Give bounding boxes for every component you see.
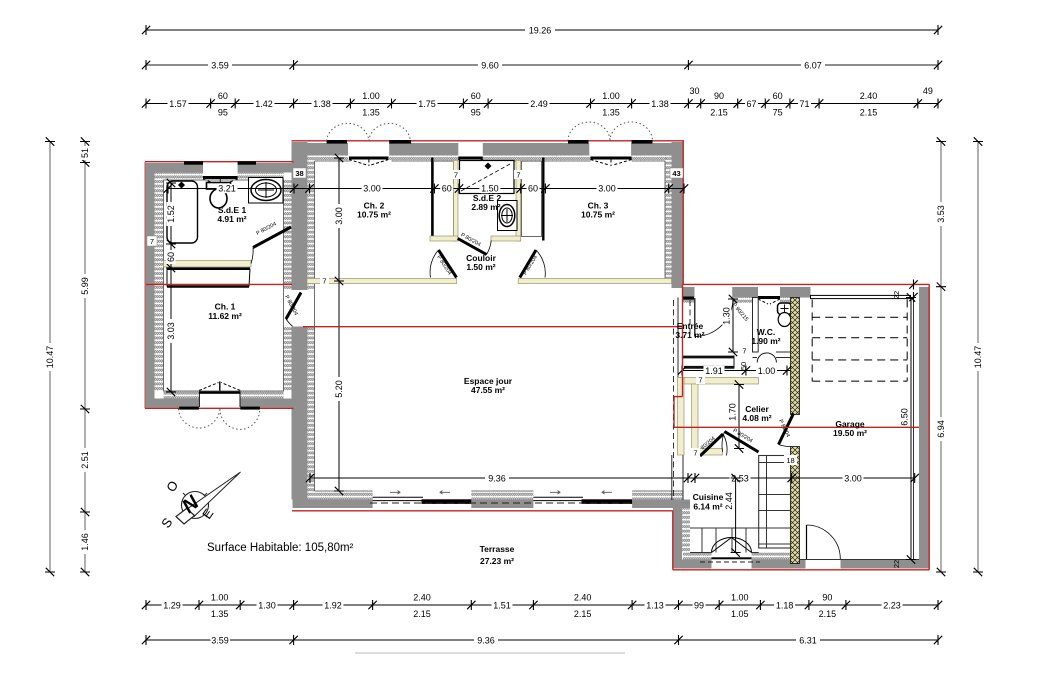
svg-text:60: 60 [773, 91, 783, 101]
svg-text:6.14 m²: 6.14 m² [693, 502, 722, 512]
svg-text:1.35: 1.35 [602, 108, 620, 118]
svg-text:11.62 m²: 11.62 m² [208, 311, 242, 321]
svg-text:49: 49 [923, 86, 933, 96]
svg-text:1.57: 1.57 [169, 99, 187, 109]
svg-text:2.40: 2.40 [574, 593, 592, 603]
svg-text:1.00: 1.00 [731, 593, 749, 603]
svg-text:19.50 m²: 19.50 m² [833, 428, 867, 438]
svg-text:2.89 m²: 2.89 m² [471, 202, 500, 212]
svg-text:7: 7 [516, 171, 520, 180]
svg-text:1.29: 1.29 [163, 601, 181, 611]
svg-text:3.53: 3.53 [936, 205, 946, 223]
svg-text:1.30: 1.30 [722, 307, 732, 325]
svg-text:60: 60 [471, 91, 481, 101]
svg-text:1.00: 1.00 [362, 91, 380, 101]
svg-text:1.00: 1.00 [602, 91, 620, 101]
svg-text:3.00: 3.00 [598, 184, 616, 194]
svg-text:10.75 m²: 10.75 m² [357, 210, 391, 220]
svg-text:3.00: 3.00 [334, 207, 344, 225]
svg-text:10.47: 10.47 [973, 346, 983, 369]
svg-text:22: 22 [892, 560, 901, 568]
svg-text:9.60: 9.60 [481, 61, 499, 71]
svg-text:1.05: 1.05 [731, 609, 749, 619]
svg-text:7: 7 [742, 347, 746, 356]
svg-text:1.35: 1.35 [362, 108, 380, 118]
svg-text:4.91 m²: 4.91 m² [217, 214, 246, 224]
svg-text:1.75: 1.75 [418, 99, 436, 109]
svg-text:1.50 m²: 1.50 m² [466, 262, 495, 272]
svg-text:3.03: 3.03 [166, 322, 176, 340]
svg-text:9.36: 9.36 [477, 636, 495, 646]
svg-text:1.13: 1.13 [646, 601, 664, 611]
svg-text:3.00: 3.00 [844, 474, 862, 484]
svg-text:27.23 m²: 27.23 m² [480, 556, 514, 566]
svg-text:43: 43 [672, 169, 680, 178]
svg-text:3.59: 3.59 [211, 61, 229, 71]
svg-text:1.35: 1.35 [211, 609, 229, 619]
svg-text:2.23: 2.23 [883, 601, 901, 611]
svg-text:75: 75 [773, 108, 783, 118]
svg-text:60: 60 [166, 252, 176, 262]
svg-text:3.00: 3.00 [363, 184, 381, 194]
svg-text:10.47: 10.47 [45, 346, 55, 369]
svg-text:2.40: 2.40 [860, 91, 878, 101]
svg-text:2.51: 2.51 [80, 451, 90, 469]
svg-text:1.38: 1.38 [313, 99, 331, 109]
svg-text:90: 90 [714, 91, 724, 101]
svg-text:1.00: 1.00 [211, 593, 229, 603]
svg-text:1.00: 1.00 [758, 366, 776, 376]
svg-text:10.75 m²: 10.75 m² [581, 210, 615, 220]
svg-text:6.50: 6.50 [900, 408, 910, 426]
svg-text:Cuisine: Cuisine [693, 492, 724, 502]
svg-text:1.51: 1.51 [493, 601, 511, 611]
svg-text:1.42: 1.42 [255, 99, 273, 109]
svg-text:6.31: 6.31 [799, 636, 817, 646]
svg-text:2.15: 2.15 [710, 108, 728, 118]
svg-text:6.94: 6.94 [936, 420, 946, 438]
svg-text:Surface Habitable: 105,80m²: Surface Habitable: 105,80m² [207, 542, 354, 554]
svg-text:5.99: 5.99 [80, 277, 90, 295]
svg-text:47.55 m²: 47.55 m² [471, 385, 505, 395]
svg-text:19.26: 19.26 [529, 26, 552, 36]
svg-text:7: 7 [322, 277, 326, 286]
svg-text:3.59: 3.59 [211, 636, 229, 646]
svg-text:71: 71 [799, 99, 809, 109]
svg-text:7: 7 [698, 376, 702, 385]
svg-text:2.49: 2.49 [530, 99, 548, 109]
svg-text:67: 67 [746, 99, 756, 109]
svg-text:1.92: 1.92 [324, 601, 342, 611]
svg-text:1.91: 1.91 [705, 366, 723, 376]
svg-text:9.36: 9.36 [488, 474, 506, 484]
svg-text:99: 99 [694, 601, 704, 611]
svg-text:Ch. 1: Ch. 1 [215, 302, 236, 312]
svg-text:2.15: 2.15 [413, 609, 431, 619]
svg-text:2.15: 2.15 [574, 609, 592, 619]
svg-text:7: 7 [693, 449, 697, 458]
svg-text:2.15: 2.15 [819, 609, 837, 619]
svg-text:95: 95 [218, 108, 228, 118]
svg-text:1.50: 1.50 [481, 184, 499, 194]
svg-text:51: 51 [80, 148, 90, 158]
svg-text:1.70: 1.70 [728, 403, 738, 421]
svg-text:2.15: 2.15 [860, 108, 878, 118]
svg-text:3.21: 3.21 [218, 184, 236, 194]
svg-text:3.71 m²: 3.71 m² [675, 330, 704, 340]
svg-text:6.07: 6.07 [804, 61, 822, 71]
svg-text:1.90 m²: 1.90 m² [751, 336, 780, 346]
svg-text:4.08 m²: 4.08 m² [742, 413, 771, 423]
svg-text:1.52: 1.52 [166, 205, 176, 223]
svg-text:60: 60 [218, 91, 228, 101]
svg-text:1.46: 1.46 [80, 533, 90, 551]
svg-text:Terrasse: Terrasse [480, 544, 515, 554]
svg-text:90: 90 [822, 593, 832, 603]
svg-text:7: 7 [454, 171, 458, 180]
svg-text:60: 60 [442, 184, 452, 194]
svg-text:95: 95 [471, 108, 481, 118]
svg-text:60: 60 [528, 184, 538, 194]
svg-text:5.20: 5.20 [334, 380, 344, 398]
svg-text:2.40: 2.40 [413, 593, 431, 603]
svg-text:1.30: 1.30 [258, 601, 276, 611]
svg-text:7: 7 [150, 237, 154, 246]
svg-text:22: 22 [892, 291, 901, 299]
svg-text:50: 50 [739, 362, 748, 370]
svg-text:18: 18 [786, 456, 794, 465]
svg-text:38: 38 [295, 169, 303, 178]
svg-text:1.18: 1.18 [776, 601, 794, 611]
svg-text:1.38: 1.38 [651, 99, 669, 109]
svg-text:2.44: 2.44 [724, 492, 734, 510]
svg-text:30: 30 [689, 86, 699, 96]
